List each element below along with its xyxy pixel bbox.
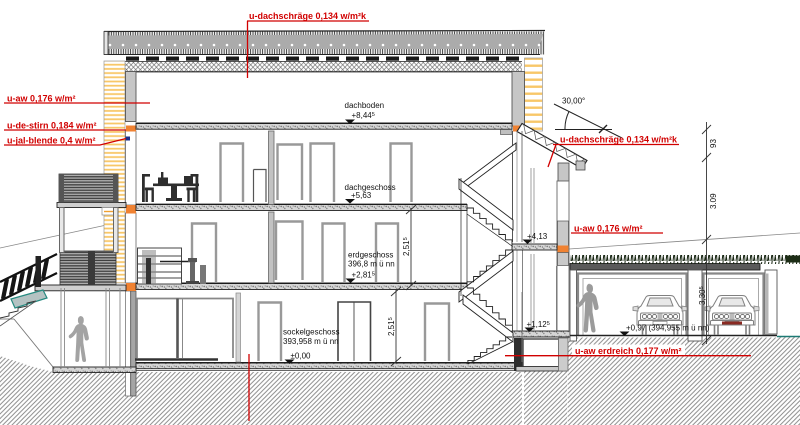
svg-text:30,00°: 30,00° — [562, 97, 585, 106]
svg-text:u-de-stirn 0,184 w/m²: u-de-stirn 0,184 w/m² — [7, 121, 97, 131]
svg-text:sockelgeschoss: sockelgeschoss — [283, 328, 339, 337]
svg-text:3.09: 3.09 — [709, 193, 718, 209]
svg-text:93: 93 — [709, 139, 718, 148]
svg-text:u-dachschräge 0,134 w/m²k: u-dachschräge 0,134 w/m²k — [560, 135, 678, 145]
svg-text:dachboden: dachboden — [345, 101, 385, 110]
svg-text:+1,125: +1,125 — [527, 320, 550, 329]
svg-text:erdgeschoss: erdgeschoss — [348, 251, 393, 260]
svg-text:u-dachschräge 0,134 w/m²k: u-dachschräge 0,134 w/m²k — [249, 11, 367, 21]
svg-text:u-aw 0,176 w/m²: u-aw 0,176 w/m² — [7, 94, 76, 104]
svg-text:+8,445: +8,445 — [352, 111, 375, 120]
svg-text:+4,13: +4,13 — [527, 232, 548, 241]
svg-text:u-aw erdreich 0,177 w/m²: u-aw erdreich 0,177 w/m² — [575, 346, 682, 356]
svg-text:393,958 m ü nn: 393,958 m ü nn — [283, 337, 339, 346]
svg-text:396,8 m ü nn: 396,8 m ü nn — [348, 260, 395, 269]
svg-text:u-jal-blende 0,4 w/m²: u-jal-blende 0,4 w/m² — [7, 136, 96, 146]
svg-text:u-aw 0,176 w/m²: u-aw 0,176 w/m² — [574, 224, 643, 234]
svg-text:+5,63: +5,63 — [351, 191, 372, 200]
svg-text:±0,00: ±0,00 — [291, 351, 312, 360]
svg-text:+2,815: +2,815 — [352, 270, 375, 279]
svg-text:+0,97 (394,955 m ü nn): +0,97 (394,955 m ü nn) — [626, 324, 710, 333]
